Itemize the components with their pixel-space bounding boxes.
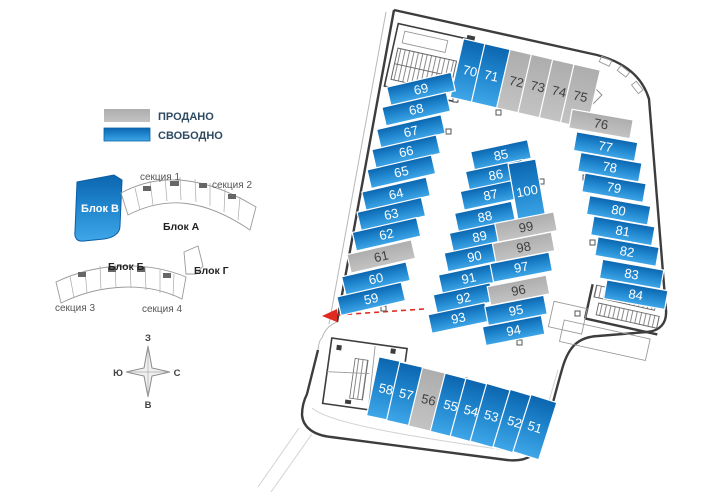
site-plan: Блок В секция 1 секция 2 Блок А: [55, 172, 256, 315]
space-number: 79: [606, 179, 623, 196]
curb-block-2: [617, 66, 629, 78]
space-number: 82: [619, 243, 636, 260]
space-number: 87: [482, 186, 499, 204]
utility-room-1: [548, 301, 587, 334]
section-2-label: секция 2: [212, 180, 252, 191]
site-line-2: [271, 434, 312, 492]
section-1-label: секция 1: [140, 172, 180, 183]
space-number: 81: [614, 222, 631, 239]
legend-sold-swatch: [104, 109, 150, 122]
space-number: 86: [487, 166, 504, 184]
space-number: 90: [466, 248, 483, 266]
parking-spaces-layer: 7071727374756968676665646362616059767778…: [337, 39, 668, 460]
space-number: 97: [513, 258, 530, 275]
curb-block-1: [599, 56, 612, 66]
space-number: 95: [508, 302, 525, 319]
door-block-1: [336, 345, 342, 351]
space-number: 83: [623, 265, 640, 282]
garage-floor-plan: 7071727374756968676665646362616059767778…: [258, 10, 668, 492]
site-line-1: [258, 428, 299, 487]
block-a-label: Блок А: [163, 221, 200, 233]
compass-rose: З Ю С В: [113, 333, 180, 411]
section-3-label: секция 3: [55, 303, 95, 314]
compass-north: С: [174, 368, 181, 379]
garage-sales-plan: 7071727374756968676665646362616059767778…: [0, 0, 702, 496]
space-number: 80: [610, 202, 627, 219]
space-number: 93: [450, 309, 467, 327]
space-number: 85: [492, 146, 509, 164]
block-b-label: Блок Б: [108, 261, 145, 273]
compass-east: В: [145, 400, 152, 411]
compass-west: З: [145, 333, 151, 344]
space-number: 77: [597, 138, 614, 155]
space-number: 96: [510, 282, 527, 299]
space-number: 92: [455, 289, 472, 307]
space-number: 94: [505, 322, 522, 339]
space-number: 88: [476, 208, 493, 226]
door-block-2: [390, 348, 396, 354]
space-number: 98: [515, 238, 532, 255]
compass-south: Ю: [113, 368, 123, 379]
door-block-3: [345, 400, 351, 405]
space-number: 99: [517, 218, 534, 235]
space-number: 78: [601, 159, 618, 176]
space-number: 84: [627, 286, 644, 303]
legend-sold-label: ПРОДАНО: [158, 111, 214, 123]
section-4-label: секция 4: [142, 304, 182, 315]
utility-room-2: [559, 320, 650, 361]
legend-free-swatch: [104, 128, 150, 141]
block-g-label: Блок Г: [194, 265, 229, 277]
space-number: 91: [460, 269, 477, 287]
space-number: 76: [593, 115, 610, 132]
legend: ПРОДАНО СВОБОДНО: [104, 109, 223, 142]
legend-free-label: СВОБОДНО: [158, 130, 223, 142]
block-v-label: Блок В: [81, 203, 119, 215]
space-number: 89: [471, 228, 488, 246]
